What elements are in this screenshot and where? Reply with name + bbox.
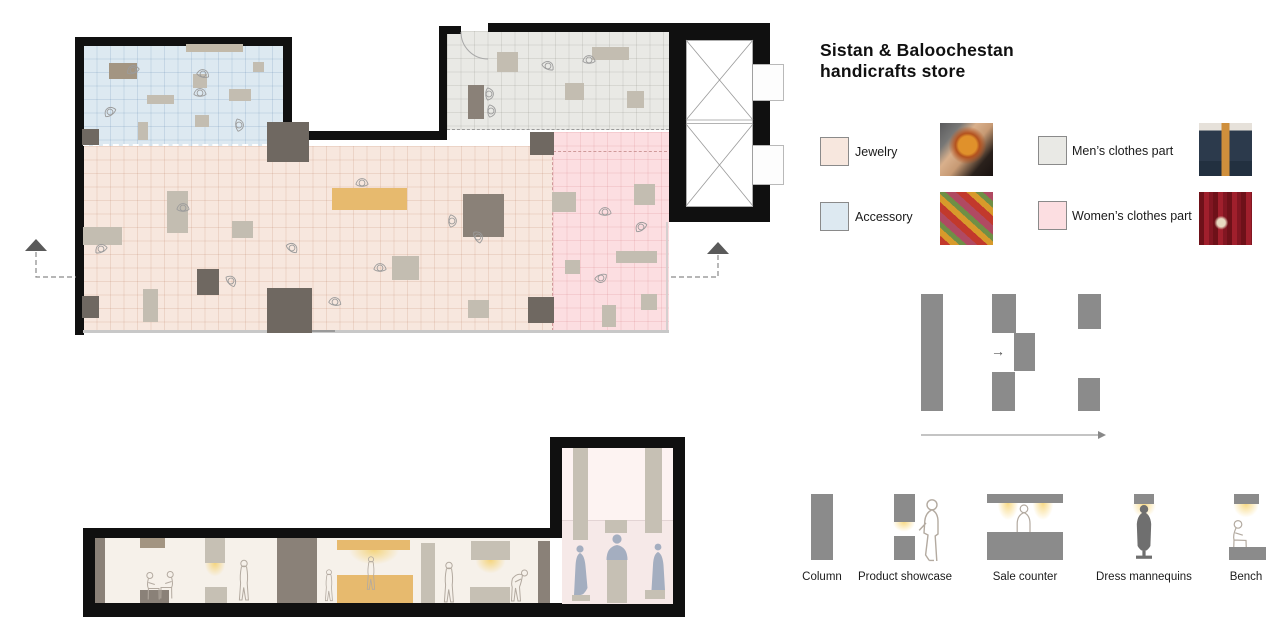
section-column [95,538,105,603]
sale-counter [337,575,413,603]
legend-label-accessory: Accessory [855,210,913,224]
display-table [463,194,504,237]
wall [75,37,292,46]
section-column [277,538,317,603]
section-column [538,541,550,603]
mannequin-base [572,595,590,601]
zone-boundary [447,129,669,130]
display-fixture [193,74,207,88]
wall-display [592,47,629,60]
bench [140,590,169,603]
wall [488,23,669,32]
ceiling-fixture [140,538,165,548]
symbol-label: Sale counter [975,571,1075,583]
structural-column [82,296,99,318]
legend-chip-jewelry [820,137,849,166]
display-fixture [616,251,657,263]
storefront-glazing [83,330,669,333]
light-glow [996,503,1020,531]
elevator-door [752,145,784,185]
diagram-block [992,294,1016,333]
legend-chip-accessory [820,202,849,231]
zone-boundary [553,151,667,152]
section-slab [83,528,550,538]
structural-column [267,288,312,333]
side-glazing [666,222,668,330]
light-glow [1231,504,1261,526]
flow-direction-arrow [915,425,1110,445]
column-symbol [811,494,833,560]
display-fixture [143,289,158,322]
light-glow [345,550,403,574]
structural-column [82,129,99,145]
diagram-block [1014,333,1035,371]
symbol-label: Bench [1206,571,1280,583]
zone-boundary [83,144,288,146]
bench-symbol-canopy [1234,494,1259,504]
display-table [468,85,484,119]
diagram-block [992,372,1015,411]
wall-display [83,227,122,245]
elevator-cab-area [686,40,753,207]
wall [75,37,84,335]
page-title: Sistan & Baloochestan handicrafts store [820,40,1014,82]
hanging-fixture [605,520,627,533]
mannequin-base [645,590,665,599]
display-fixture [147,95,174,104]
symbol-label: Dress mannequins [1094,571,1194,583]
display-fixture [195,115,209,127]
display-table [109,63,137,79]
display-fixture [167,191,188,233]
bench-symbol [1229,547,1266,560]
product-showcase-symbol [894,494,915,522]
display-fixture [565,83,584,100]
diagram-block [921,294,943,411]
drawing-sheet: Sistan & Baloochestan handicrafts store … [0,0,1280,640]
title-line-1: Sistan & Baloochestan [820,40,1014,61]
symbol-label: Column [782,571,862,583]
display-fixture [641,294,657,310]
sale-counter-symbol [987,532,1063,560]
legend-chip-mens [1038,136,1067,165]
legend-label-mens: Men’s clothes part [1072,144,1173,158]
display-fixture [253,62,264,72]
display-fixture [468,300,489,318]
light-glow [203,563,227,585]
display-fixture [627,91,644,108]
mannequin-symbol-canopy [1134,494,1154,504]
display-fixture [634,184,655,205]
mannequin-pedestal [607,558,627,603]
legend-label-jewelry: Jewelry [855,145,897,159]
display-fixture [138,122,148,140]
ceiling-band [337,540,410,550]
wall [283,37,292,133]
mens-clothes-photo [1199,123,1252,176]
display-fixture [229,89,251,101]
structural-column [267,122,309,162]
display-table [197,269,219,295]
ceiling-fixture [471,541,510,560]
jewelry-photo [940,123,993,176]
lobby-column [645,448,662,533]
product-showcase-symbol-base [894,536,915,560]
display-fixture [565,260,580,274]
display-fixture [232,221,253,238]
section-slab [550,437,685,448]
wall [439,26,461,34]
symbol-label: Product showcase [855,571,955,583]
legend-chip-womens [1038,201,1067,230]
display-fixture [392,256,419,280]
section-column [421,543,435,603]
product-showcase-base [205,587,227,603]
light-glow [1031,503,1055,531]
diagram-block [1078,294,1101,329]
wall [439,26,447,132]
sale-counter [332,188,407,210]
flow-arrow-icon: → [991,343,1005,359]
light-glow [473,560,508,582]
light-glow [1130,504,1158,526]
sale-counter-symbol-canopy [987,494,1063,503]
womens-clothes-photo [1199,192,1252,245]
elevator-door [752,64,784,101]
product-showcase-top [205,538,225,563]
zone-accessory [83,45,288,146]
shopper-figure [912,498,948,562]
legend-label-womens: Women’s clothes part [1072,209,1192,223]
diagram-block [1078,378,1100,411]
display-fixture [552,192,576,212]
structural-column [530,132,554,155]
display-fixture [602,305,616,327]
section-floor [83,603,685,617]
section-wall [550,437,562,538]
wall-display [186,44,243,52]
floor-display [470,587,510,603]
accessory-photo [940,192,993,245]
lobby-column [573,448,588,540]
section-wall [673,437,685,617]
title-line-2: handicrafts store [820,61,1014,82]
display-fixture [497,52,518,72]
structural-column [528,297,554,323]
